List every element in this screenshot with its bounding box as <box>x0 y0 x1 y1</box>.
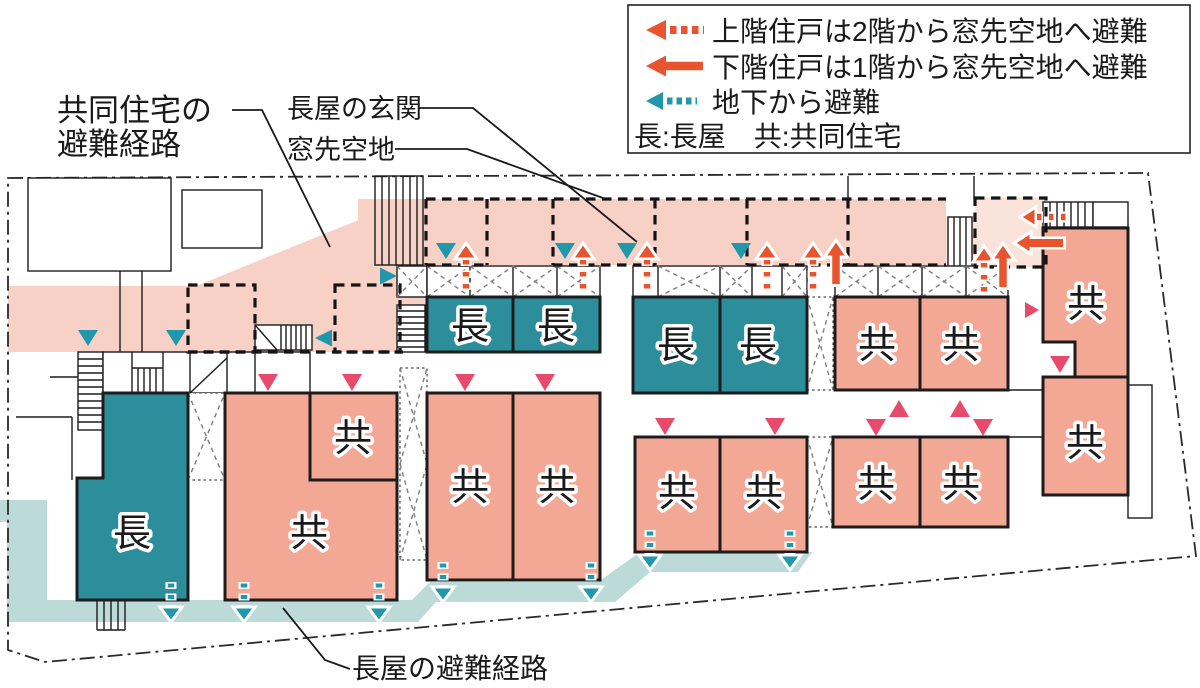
window-front-open-space-label: 窓先空地 <box>287 135 395 165</box>
unit-label-apartment: 共 <box>538 467 576 509</box>
unit-label-rowhouse: 長 <box>113 513 151 555</box>
rowhouse-route-label: 長屋の避難経路 <box>352 653 548 684</box>
stair-mid <box>397 305 425 352</box>
rowhouse-entrance-label: 長屋の玄関 <box>287 94 422 124</box>
rose-down-triangle-icon <box>342 374 362 391</box>
rose-down-triangle-icon <box>866 419 886 436</box>
entry-rooms <box>103 352 310 393</box>
stair-top-right <box>1043 202 1128 227</box>
rose-up-triangle-icon <box>889 400 909 417</box>
legend-item-label: 地下から避難 <box>712 87 880 118</box>
rose-down-triangle-icon <box>535 374 555 391</box>
evacuation-plan-page: 長 長 長 長 長 共 共 共 共 共 共 共 共 共 共 共 共 共同住宅の … <box>0 0 1200 688</box>
rose-down-triangle-icon <box>1050 356 1070 373</box>
rose-down-triangle-icon <box>455 374 475 391</box>
stair-band <box>255 325 312 350</box>
unit-label-apartment: 共 <box>658 473 696 515</box>
legend: 上階住戸は2階から窓先空地へ避難 下階住戸は1階から窓先空地へ避難 地下から避難… <box>628 5 1190 153</box>
unit-label-rowhouse: 長 <box>537 306 575 348</box>
apartment-route-label-line2: 避難経路 <box>57 127 181 162</box>
evacuation-plan-diagram: 長 長 長 長 長 共 共 共 共 共 共 共 共 共 共 共 共 共同住宅の … <box>0 0 1200 688</box>
rose-down-triangle-icon <box>973 419 993 436</box>
unit-label-rowhouse: 長 <box>739 325 777 367</box>
stair-top-right-small <box>948 217 972 267</box>
unit-label-apartment: 共 <box>942 464 980 506</box>
unit-label-apartment: 共 <box>334 418 372 460</box>
unit-label-apartment: 共 <box>451 467 489 509</box>
legend-item-label: 上階住戸は2階から窓先空地へ避難 <box>712 16 1148 47</box>
unit-label-apartment: 共 <box>290 513 328 555</box>
legend-item-label: 下階住戸は1階から窓先空地へ避難 <box>712 52 1148 83</box>
unit-label-apartment: 共 <box>942 325 980 367</box>
rose-down-triangle-icon <box>765 418 785 435</box>
unit-label-apartment: 共 <box>1067 284 1105 326</box>
legend-abbreviations: 長:長屋 共:共同住宅 <box>634 121 902 152</box>
unit-label-rowhouse: 長 <box>657 325 695 367</box>
unit-label-rowhouse: 長 <box>451 306 489 348</box>
unit-label-apartment: 共 <box>1066 423 1104 465</box>
rose-up-triangle-icon <box>950 400 970 417</box>
apartment-route-label-line1: 共同住宅の <box>57 93 212 128</box>
unit-label-apartment: 共 <box>857 464 895 506</box>
unit-label-apartment: 共 <box>858 325 896 367</box>
unit-label-apartment: 共 <box>745 473 783 515</box>
rose-right-triangle-icon <box>1025 302 1039 318</box>
stair-left <box>78 352 103 430</box>
rose-down-triangle-icon <box>655 418 675 435</box>
